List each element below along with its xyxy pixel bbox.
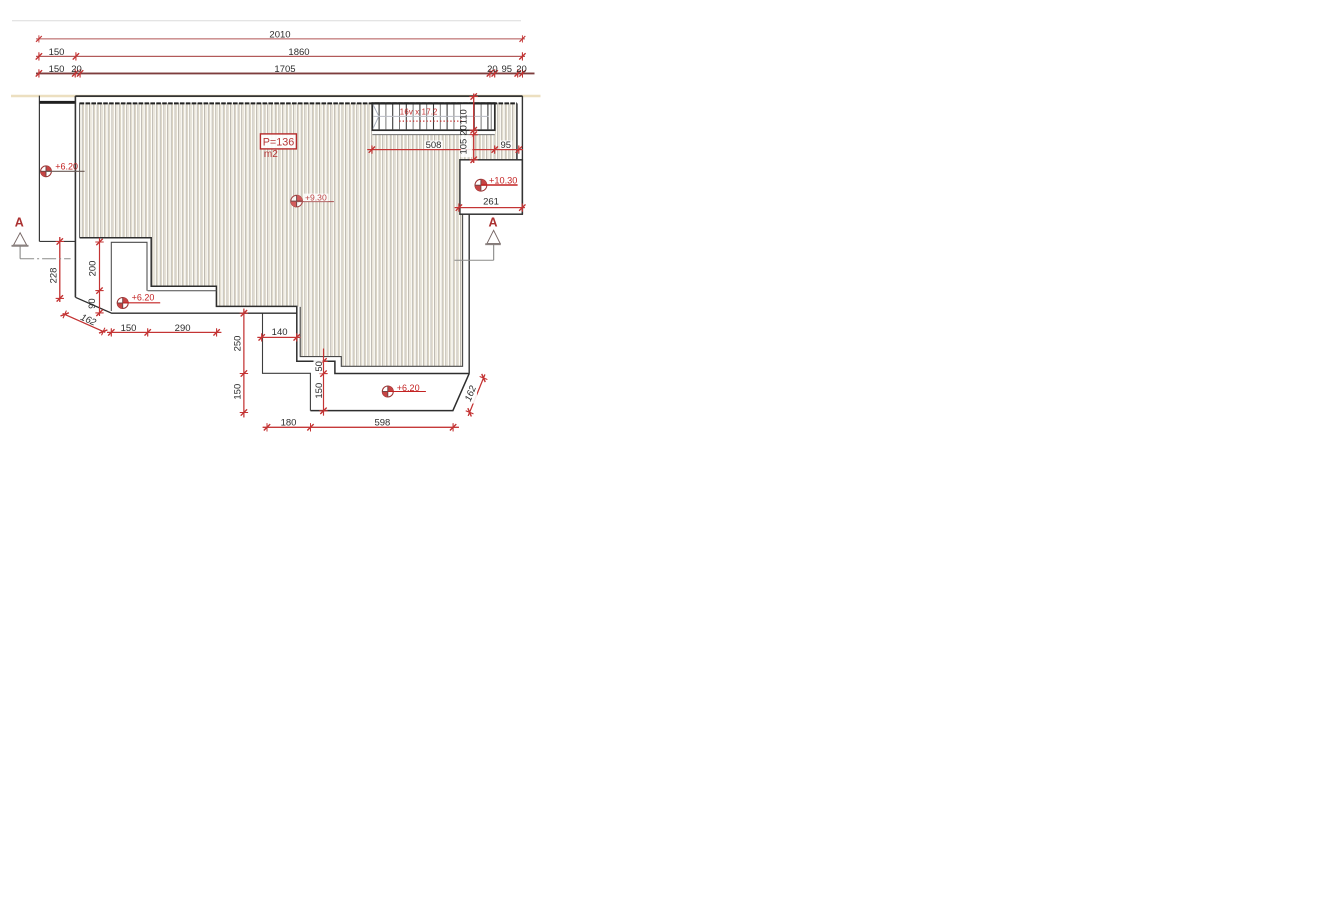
svg-text:150: 150 <box>233 384 244 400</box>
svg-text:20: 20 <box>516 64 527 75</box>
svg-text:598: 598 <box>374 417 390 428</box>
svg-text:m2: m2 <box>264 149 278 160</box>
svg-text:150: 150 <box>49 47 65 58</box>
svg-text:A: A <box>15 216 24 230</box>
svg-text:20: 20 <box>459 125 470 136</box>
svg-text:110: 110 <box>459 109 470 124</box>
svg-text:+6.20: +6.20 <box>397 383 420 393</box>
svg-text:150: 150 <box>121 323 137 334</box>
svg-text:290: 290 <box>175 323 191 334</box>
svg-text:+6.20: +6.20 <box>55 162 78 172</box>
svg-text:2010: 2010 <box>269 29 290 40</box>
svg-text:16v x 17.2: 16v x 17.2 <box>400 107 438 116</box>
svg-text:105: 105 <box>459 139 470 155</box>
svg-text:261: 261 <box>483 197 499 208</box>
svg-text:50: 50 <box>314 361 325 372</box>
svg-text:1860: 1860 <box>288 47 309 58</box>
svg-text:P=136: P=136 <box>263 137 295 149</box>
svg-text:508: 508 <box>426 140 442 151</box>
svg-text:+9.30: +9.30 <box>305 193 327 203</box>
svg-text:180: 180 <box>281 417 297 428</box>
svg-text:20: 20 <box>71 64 82 75</box>
svg-text:228: 228 <box>48 268 59 284</box>
svg-text:95: 95 <box>502 64 513 75</box>
svg-text:150: 150 <box>314 383 325 399</box>
svg-text:1705: 1705 <box>274 64 295 75</box>
svg-text:150: 150 <box>49 64 65 75</box>
svg-text:A: A <box>489 216 498 230</box>
svg-text:+6.20: +6.20 <box>132 293 155 303</box>
svg-text:250: 250 <box>232 336 243 352</box>
svg-text:90: 90 <box>87 298 98 309</box>
svg-text:200: 200 <box>88 261 99 277</box>
svg-text:140: 140 <box>272 327 288 338</box>
svg-text:+10.30: +10.30 <box>489 175 517 185</box>
svg-text:20: 20 <box>487 64 498 75</box>
svg-text:95: 95 <box>501 140 512 151</box>
